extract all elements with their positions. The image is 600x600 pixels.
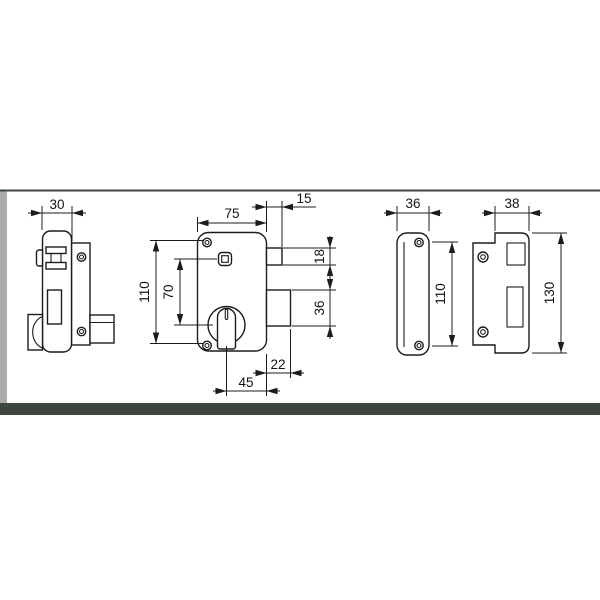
strike-plate-view: 38 130 bbox=[473, 196, 567, 353]
dim-cover-fixing-centers-label: 110 bbox=[433, 283, 448, 305]
dimension-cover-fixing-centers: 110 bbox=[432, 242, 458, 346]
dim-latch-height-label: 18 bbox=[312, 249, 327, 264]
dimension-deadbolt-height: 36 bbox=[292, 277, 336, 339]
side-latch-bump bbox=[37, 250, 43, 266]
dimension-latch-height: 18 bbox=[283, 236, 336, 278]
bottom-frame-band bbox=[0, 403, 600, 415]
dim-strike-height-label: 130 bbox=[542, 282, 557, 305]
dimension-cover-width: 36 bbox=[384, 196, 442, 231]
side-latch-spool-top bbox=[46, 247, 66, 254]
dim-deadbolt-height-label: 36 bbox=[312, 300, 327, 315]
front-screw-hole-bottom bbox=[203, 341, 212, 350]
cover-plate-screw-bottom bbox=[415, 341, 423, 349]
dim-front-width-label: 75 bbox=[224, 206, 239, 221]
side-deadbolt bbox=[28, 315, 43, 351]
left-edge-strip bbox=[0, 190, 7, 414]
front-screw-hole-top bbox=[203, 238, 212, 247]
side-case-body bbox=[90, 315, 114, 343]
dim-front-height-label: 110 bbox=[137, 281, 152, 303]
dimension-strike-height: 130 bbox=[532, 233, 567, 353]
dimension-strike-width: 38 bbox=[482, 196, 542, 231]
cover-plate-view: 36 110 bbox=[384, 196, 458, 355]
dim-cover-width-label: 36 bbox=[405, 196, 420, 211]
lock-dimension-drawing: 30 75 15 bbox=[0, 0, 600, 600]
dim-axis-distance-label: 70 bbox=[161, 284, 176, 299]
strike-screw-bottom bbox=[478, 327, 488, 337]
latch-bolt bbox=[267, 248, 283, 265]
dim-strike-width-label: 38 bbox=[504, 196, 519, 211]
euro-cylinder-profile bbox=[218, 309, 236, 350]
side-cutout bbox=[48, 290, 62, 324]
spindle-follower bbox=[219, 253, 232, 266]
dim-deadbolt-projection-label: 22 bbox=[270, 357, 285, 372]
dim-backset-label: 45 bbox=[238, 375, 253, 390]
side-screw-hole-top bbox=[77, 253, 85, 261]
cover-plate bbox=[397, 233, 429, 355]
dead-bolt bbox=[267, 290, 291, 326]
dim-side-depth-label: 30 bbox=[49, 197, 64, 212]
dim-latch-projection-label: 15 bbox=[296, 191, 311, 206]
strike-screw-top bbox=[478, 252, 488, 262]
side-screw-hole-bottom bbox=[77, 327, 85, 335]
cover-plate-screw-top bbox=[415, 238, 423, 246]
technical-drawing-canvas: 30 75 15 bbox=[0, 0, 600, 600]
side-latch-spool-bottom bbox=[46, 263, 66, 270]
side-view: 30 bbox=[28, 197, 114, 352]
front-view: 75 15 18 36 bbox=[137, 191, 336, 396]
